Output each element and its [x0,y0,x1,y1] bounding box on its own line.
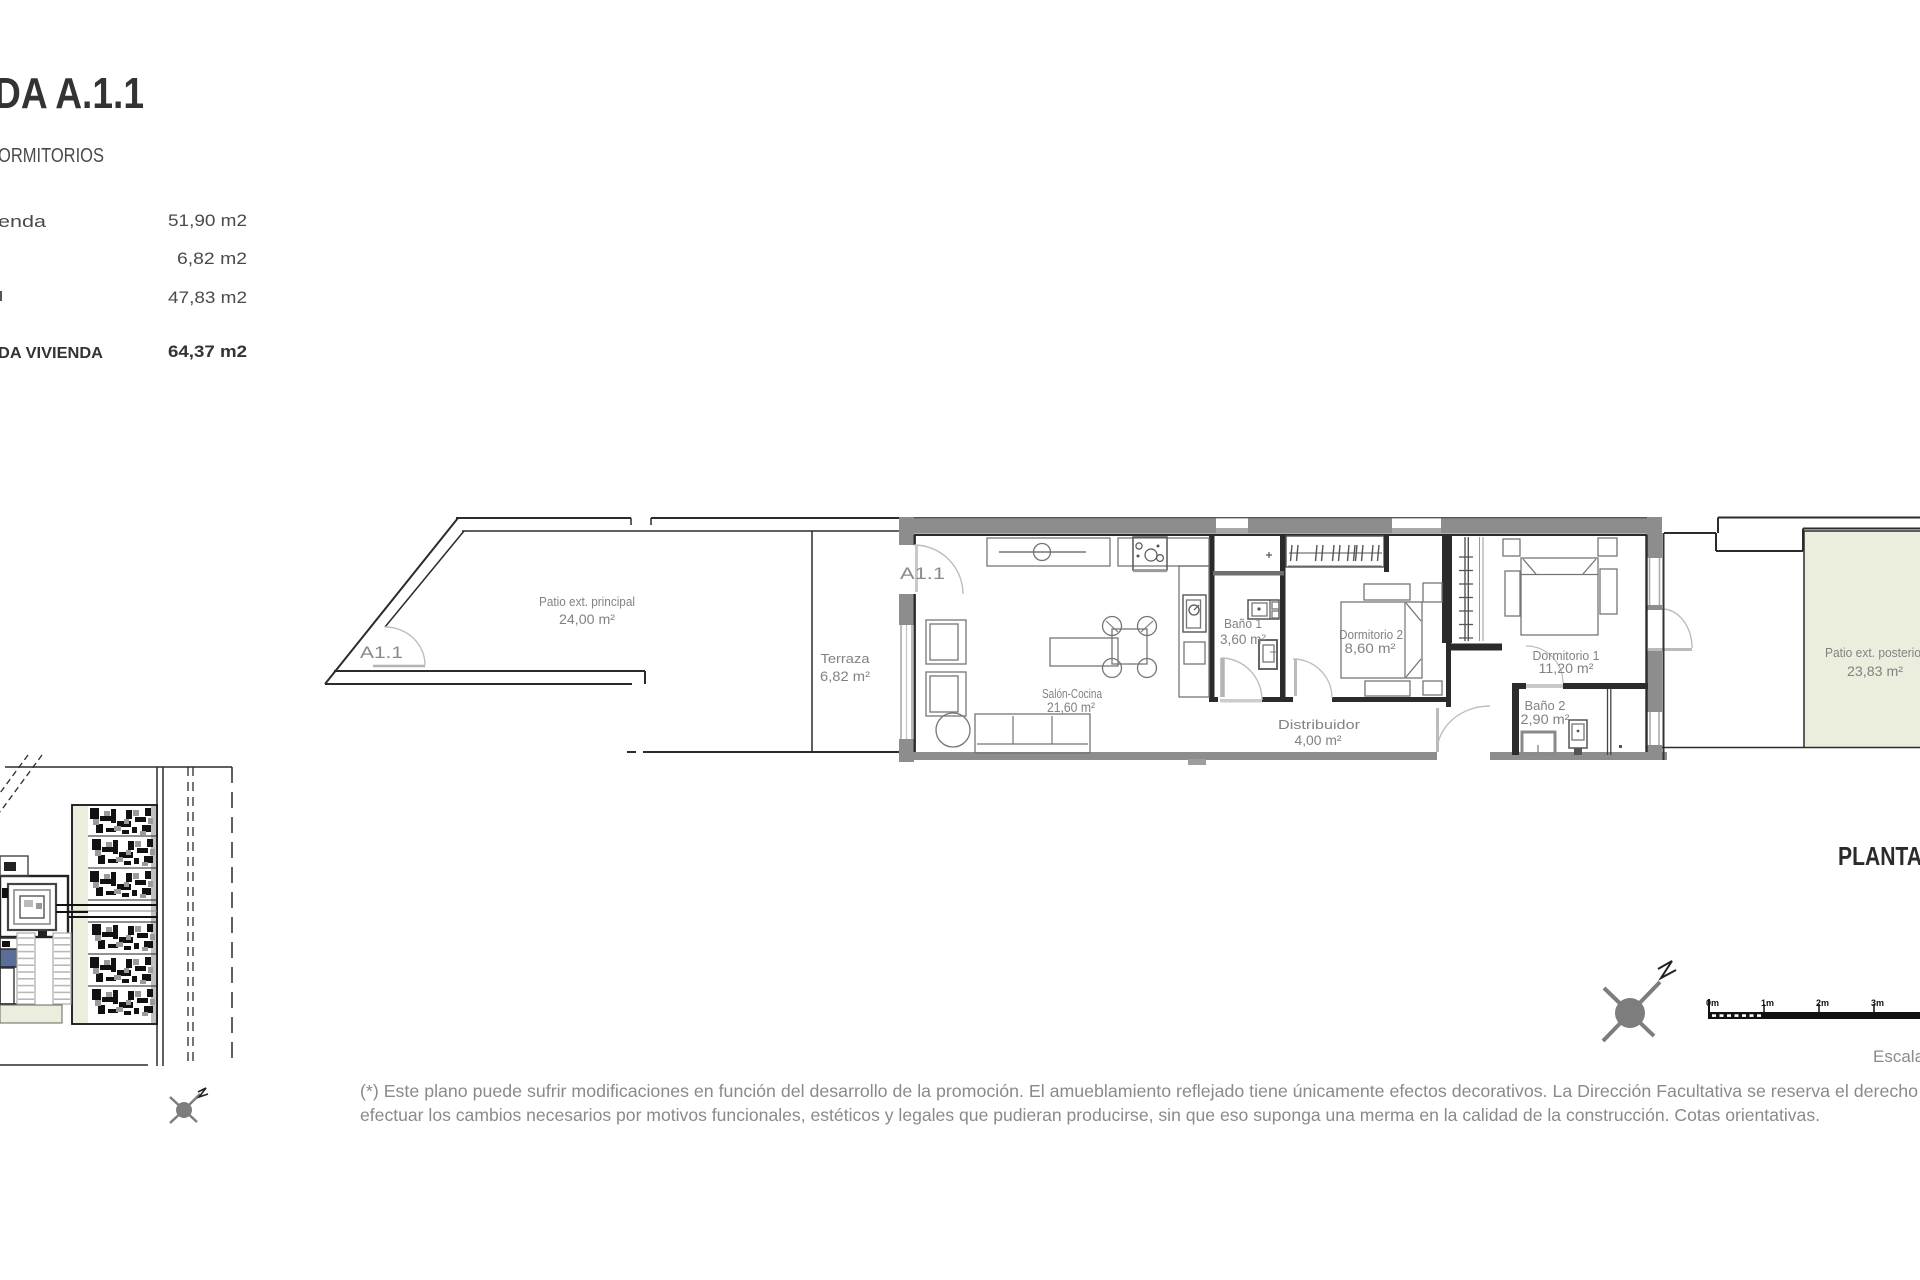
svg-text:64,37 m2: 64,37 m2 [168,343,247,361]
svg-text:0m: 0m [1706,998,1719,1008]
svg-text:51,90 m2: 51,90 m2 [168,211,247,230]
svg-text:Patio ext. posterior: Patio ext. posterior [1825,645,1920,660]
svg-text:4,00 m²: 4,00 m² [1295,732,1342,748]
svg-text:1m: 1m [1761,998,1774,1008]
svg-text:6,82 m2: 6,82 m2 [177,249,247,268]
svg-text:8,60 m²: 8,60 m² [1345,640,1396,656]
svg-text:Patio ext. principal: Patio ext. principal [539,594,635,609]
svg-text:(*) Este plano puede sufrir mo: (*) Este plano puede sufrir modificacion… [360,1081,1918,1101]
svg-text:DA A.1.1: DA A.1.1 [0,69,144,118]
svg-text:A1.1: A1.1 [900,565,945,583]
svg-text:Distribuidor: Distribuidor [1278,717,1361,732]
svg-text:24,00 m²: 24,00 m² [559,611,615,627]
svg-text:11,20 m²: 11,20 m² [1539,660,1594,676]
svg-text:Escala 1:100: Escala 1:100 [1873,1047,1920,1066]
svg-text:ORMITORIOS: ORMITORIOS [0,145,104,167]
svg-text:47,83 m2: 47,83 m2 [168,288,247,307]
svg-text:PLANTA: PLANTA [1838,841,1920,871]
svg-text:3,60 m²: 3,60 m² [1220,631,1266,647]
svg-text:enda: enda [0,212,47,231]
svg-text:2,90 m²: 2,90 m² [1521,711,1570,727]
svg-text:Terraza: Terraza [821,651,871,666]
svg-text:23,83 m²: 23,83 m² [1847,663,1903,679]
svg-text:3m: 3m [1871,998,1884,1008]
svg-text:efectuar los cambios necesario: efectuar los cambios necesarios por moti… [360,1105,1820,1125]
svg-text:DA VIVIENDA: DA VIVIENDA [0,345,103,362]
svg-text:2m: 2m [1816,998,1829,1008]
svg-text:Baño 1: Baño 1 [1224,616,1262,631]
svg-text:6,82 m²: 6,82 m² [820,668,870,684]
svg-text:A1.1: A1.1 [360,644,403,662]
svg-text:21,60 m²: 21,60 m² [1047,699,1095,715]
